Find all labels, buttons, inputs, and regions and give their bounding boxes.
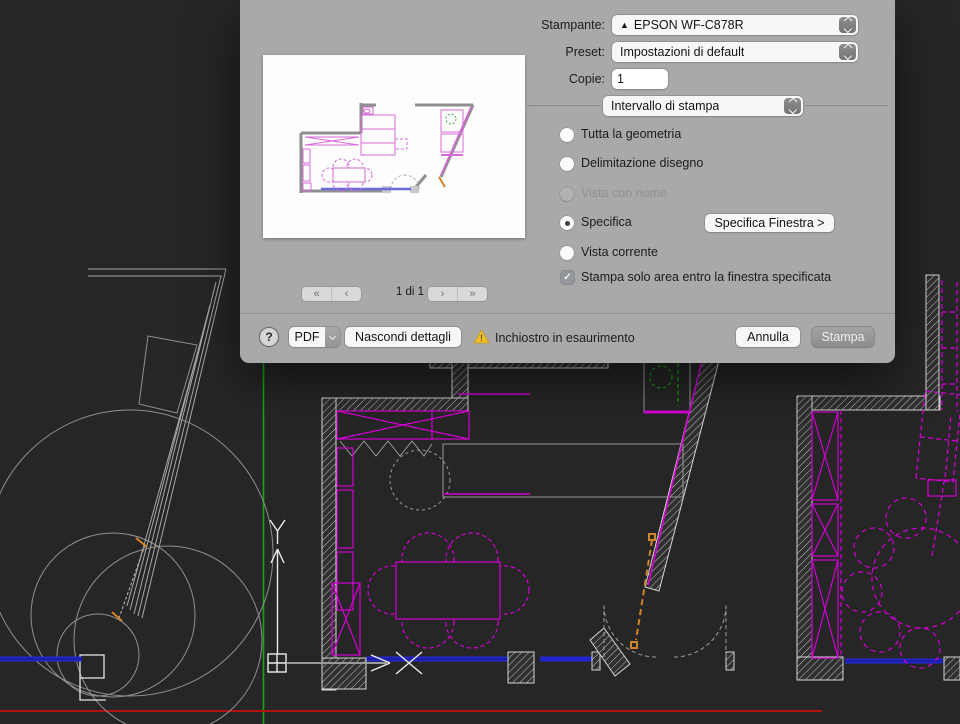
stepper-icon — [839, 44, 856, 60]
svg-text:!: ! — [480, 333, 483, 343]
preset-value: Impostazioni di default — [620, 45, 744, 59]
radio-label: Delimitazione disegno — [581, 156, 703, 171]
print-area-checkbox[interactable] — [561, 271, 574, 284]
radio-label: Specifica — [581, 215, 632, 230]
print-range-select[interactable]: Intervallo di stampa — [603, 96, 803, 116]
radio-vista-corrente[interactable] — [560, 246, 574, 260]
radio-specifica[interactable] — [560, 216, 574, 230]
last-page-button[interactable]: » — [457, 287, 487, 301]
print-range-value: Intervallo di stampa — [611, 99, 719, 113]
print-preview-drawing — [263, 55, 525, 238]
radio-vista-con-nome — [560, 187, 574, 201]
pager-back-group: « ‹ — [302, 287, 361, 301]
radio-label: Tutta la geometria — [581, 127, 681, 142]
printer-select[interactable]: ▲ EPSON WF-C878R — [612, 15, 858, 35]
ink-warning-icon: ! — [473, 329, 490, 344]
pager-forward-group: › » — [428, 287, 487, 301]
stepper-icon — [784, 98, 801, 114]
chevron-down-icon — [325, 327, 340, 347]
printer-warning-icon: ▲ — [620, 20, 629, 30]
cancel-button[interactable]: Annulla — [736, 327, 800, 347]
copies-value: 1 — [617, 72, 624, 86]
radio-tutta-la-geometria[interactable] — [560, 128, 574, 142]
print-preview — [263, 55, 525, 238]
pdf-label: PDF — [289, 327, 325, 347]
printer-value: EPSON WF-C878R — [634, 18, 744, 32]
prev-page-button[interactable]: ‹ — [331, 287, 361, 301]
pdf-menu-button[interactable]: PDF — [289, 327, 340, 347]
ink-warning-text: Inchiostro in esaurimento — [495, 331, 635, 345]
next-page-button[interactable]: › — [428, 287, 457, 301]
print-button[interactable]: Stampa — [812, 327, 874, 347]
print-dialog: Stampante: ▲ EPSON WF-C878R Preset: Impo… — [240, 0, 895, 363]
help-button[interactable]: ? — [260, 328, 278, 346]
divider-left — [527, 105, 601, 106]
radio-label: Vista corrente — [581, 245, 658, 260]
printer-label: Stampante: — [475, 15, 605, 35]
divider-right — [805, 105, 888, 106]
hide-details-button[interactable]: Nascondi dettagli — [345, 327, 461, 347]
preset-select[interactable]: Impostazioni di default — [612, 42, 858, 62]
specify-window-button[interactable]: Specifica Finestra > — [705, 214, 834, 232]
radio-delimitazione-disegno[interactable] — [560, 157, 574, 171]
radio-label-disabled: Vista con nome — [581, 186, 667, 201]
first-page-button[interactable]: « — [302, 287, 331, 301]
stepper-icon — [839, 17, 856, 33]
footer-divider — [240, 313, 895, 314]
copies-input[interactable]: 1 — [612, 69, 668, 89]
checkbox-label: Stampa solo area entro la finestra speci… — [581, 270, 831, 285]
